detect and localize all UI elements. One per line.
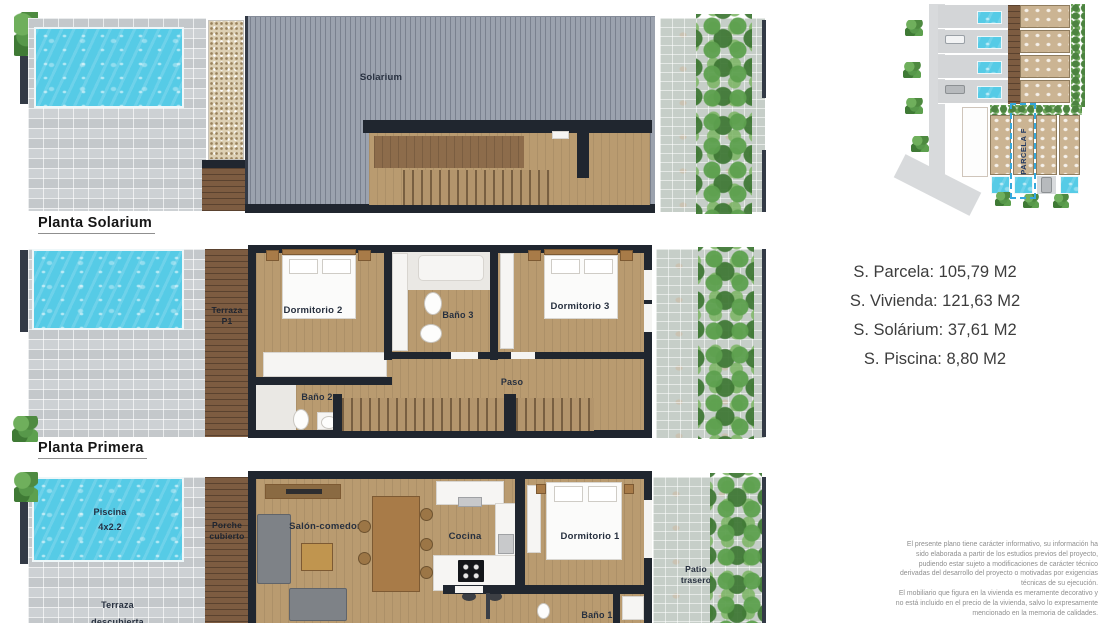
hedge: [1071, 4, 1085, 107]
exterior-wall: [248, 430, 652, 438]
house-unit: [990, 115, 1011, 175]
floor-title-primera: Planta Primera: [38, 440, 147, 459]
toilet: [293, 409, 309, 430]
room-label-terraza-p1: Terraza P1: [202, 305, 252, 326]
plant-icon: [12, 416, 38, 442]
pool-solarium-level: [34, 27, 184, 108]
room-label-piscina: Piscina 4x2.2: [70, 507, 150, 534]
terraza-line1: Terraza: [202, 305, 252, 316]
area-summary: S. Parcela: 105,79 M2 S. Vivienda: 121,6…: [810, 258, 1060, 374]
house-unit: [1020, 30, 1070, 53]
stairs-flight: [342, 398, 504, 431]
parcel-f-label: PARCELA F: [1019, 128, 1028, 175]
room-label-dormitorio1: Dormitorio 1: [545, 531, 635, 543]
disclaimer-line: mencionado en la memoria de calidades.: [870, 609, 1098, 619]
door-opening: [511, 352, 535, 359]
house-unit: [1020, 80, 1070, 103]
disclaimer-line: no está incluido en el precio de la vivi…: [870, 599, 1098, 609]
mini-pool: [1060, 176, 1079, 194]
hedge: [990, 105, 1082, 115]
door-opening: [455, 586, 483, 593]
tree-icon: [995, 192, 1011, 206]
boundary-wall: [762, 150, 766, 212]
house-unit: [1020, 5, 1070, 28]
floor-title-text: Planta Primera: [38, 440, 147, 459]
door-leaf: [486, 593, 490, 619]
car-icon: [945, 85, 965, 94]
floor-title-solarium: Planta Solarium: [38, 215, 155, 234]
cooker-hood: [458, 497, 482, 507]
tree-icon: [698, 247, 754, 439]
disclaimer-line: pudiendo estar sujeto a modificaciones d…: [870, 560, 1098, 570]
car-icon: [1041, 177, 1052, 193]
disclaimer-line: sido elaborada a partir de los estudios …: [870, 550, 1098, 560]
window-opening: [644, 304, 652, 332]
wood-deck-patch: [202, 168, 247, 211]
room-label-terraza-line2: descubierta: [60, 617, 175, 623]
room-label-dormitorio3: Dormitorio 3: [535, 301, 625, 313]
chair: [420, 508, 433, 521]
room-label-bano3: Baño 3: [428, 310, 488, 321]
stairwell-wall: [363, 120, 652, 133]
room-label-cocina: Cocina: [435, 531, 495, 543]
pillow: [551, 259, 580, 274]
room-label-solarium: Solarium: [336, 72, 426, 84]
mini-pool: [977, 11, 1002, 24]
white-building: [962, 107, 988, 177]
area-line-vivienda: S. Vivienda: 121,63 M2: [810, 287, 1060, 316]
piscina-line2: 4x2.2: [70, 522, 150, 533]
car-icon: [945, 35, 965, 44]
sink: [420, 324, 442, 343]
stair-divider: [504, 394, 516, 437]
porche-line1: Porche: [200, 520, 254, 531]
chair: [420, 538, 433, 551]
tree-icon: [1053, 194, 1069, 208]
mini-pool: [977, 86, 1002, 99]
tree-icon: [696, 14, 752, 214]
porche-line2: cubierto: [200, 531, 254, 542]
chair: [358, 552, 371, 565]
disclaimer-line: técnicas de su ejecución.: [870, 579, 1098, 589]
stair-wall: [333, 394, 342, 437]
nightstand: [528, 250, 541, 261]
pillow: [322, 259, 351, 274]
piscina-line1: Piscina: [70, 507, 150, 518]
tree-icon: [905, 20, 923, 36]
disclaimer-line: El mobiliario que figura en la vivienda …: [870, 589, 1098, 599]
room-label-bano1: Baño 1: [565, 610, 629, 621]
exterior-wall: [248, 245, 256, 438]
exterior-wall: [248, 471, 652, 479]
interior-wall: [490, 245, 498, 360]
interior-wall: [256, 377, 392, 385]
wardrobe: [263, 352, 387, 377]
interior-wall: [515, 471, 525, 593]
coffee-table: [301, 543, 333, 571]
deck-wall: [202, 160, 247, 168]
stair-landing: [552, 131, 569, 139]
nightstand: [266, 250, 279, 261]
shower-column: [392, 253, 408, 351]
plant-icon: [14, 472, 38, 502]
floor-title-text: Planta Solarium: [38, 215, 155, 234]
kitchen-sink: [498, 534, 514, 554]
nightstand: [624, 484, 634, 494]
pillow: [289, 259, 318, 274]
area-line-solarium: S. Solárium: 37,61 M2: [810, 316, 1060, 345]
nightstand: [620, 250, 633, 261]
wardrobe: [527, 485, 541, 553]
room-label-terraza: Terraza: [70, 600, 165, 611]
site-plan: PARCELA F: [903, 4, 1097, 206]
boundary-wall: [762, 477, 766, 623]
pillow: [554, 486, 583, 502]
area-line-parcela: S. Parcela: 105,79 M2: [810, 258, 1060, 287]
terraza-p1-deck: [205, 249, 250, 437]
nightstand: [358, 250, 371, 261]
mini-deck: [1008, 5, 1020, 104]
stairwell-wall: [577, 120, 589, 178]
exterior-wall: [248, 471, 256, 623]
induction-hob: [458, 560, 484, 582]
nightstand: [536, 484, 546, 494]
solarium-bottom-wall: [245, 204, 655, 213]
tv: [286, 489, 322, 494]
boundary-wall: [762, 249, 766, 437]
stairs-roof: [403, 170, 550, 205]
area-line-piscina: S. Piscina: 8,80 M2: [810, 345, 1060, 374]
terraza-line2: P1: [202, 316, 252, 327]
tree-icon: [903, 62, 921, 78]
disclaimer: El presente plano tiene carácter informa…: [870, 540, 1098, 618]
mini-pool: [977, 36, 1002, 49]
dining-table: [372, 496, 420, 592]
disclaimer-line: El presente plano tiene carácter informa…: [870, 540, 1098, 550]
pillow: [584, 259, 613, 274]
tree-icon: [911, 136, 929, 152]
chair: [358, 520, 371, 533]
interior-wall: [384, 245, 392, 360]
stairwell-dark-wood: [374, 136, 524, 168]
house-unit: [1020, 55, 1070, 78]
bathtub: [418, 255, 484, 281]
sideboard: [265, 484, 341, 499]
parcel-f-outline: PARCELA F: [1010, 103, 1036, 199]
plan-sheet: Solarium Planta Solarium Terraza P1 Dorm…: [0, 0, 1110, 623]
wardrobe: [500, 253, 514, 349]
window-opening: [644, 270, 652, 300]
tree-icon: [710, 473, 762, 623]
gravel-strip: [208, 20, 244, 160]
room-label-dormitorio2: Dormitorio 2: [268, 305, 358, 317]
stairs-flight: [516, 398, 594, 431]
chair: [420, 566, 433, 579]
house-unit: [1059, 115, 1080, 175]
window-opening: [644, 500, 652, 558]
house-unit: [1036, 115, 1057, 175]
pool-first-floor: [32, 249, 184, 330]
toilet: [537, 603, 550, 619]
porche-deck: [205, 477, 250, 623]
tree-icon: [905, 98, 923, 114]
solarium-edge: [245, 16, 248, 206]
room-label-paso: Paso: [482, 377, 542, 388]
door-opening: [451, 352, 478, 359]
sofa: [289, 588, 347, 621]
disclaimer-line: derivadas del desarrollo del proyecto o …: [870, 569, 1098, 579]
pillow: [588, 486, 617, 502]
boundary-wall: [762, 20, 766, 98]
bed-dormitorio1: [546, 482, 622, 560]
room-label-porche: Porche cubierto: [200, 520, 254, 541]
mini-pool: [977, 61, 1002, 74]
